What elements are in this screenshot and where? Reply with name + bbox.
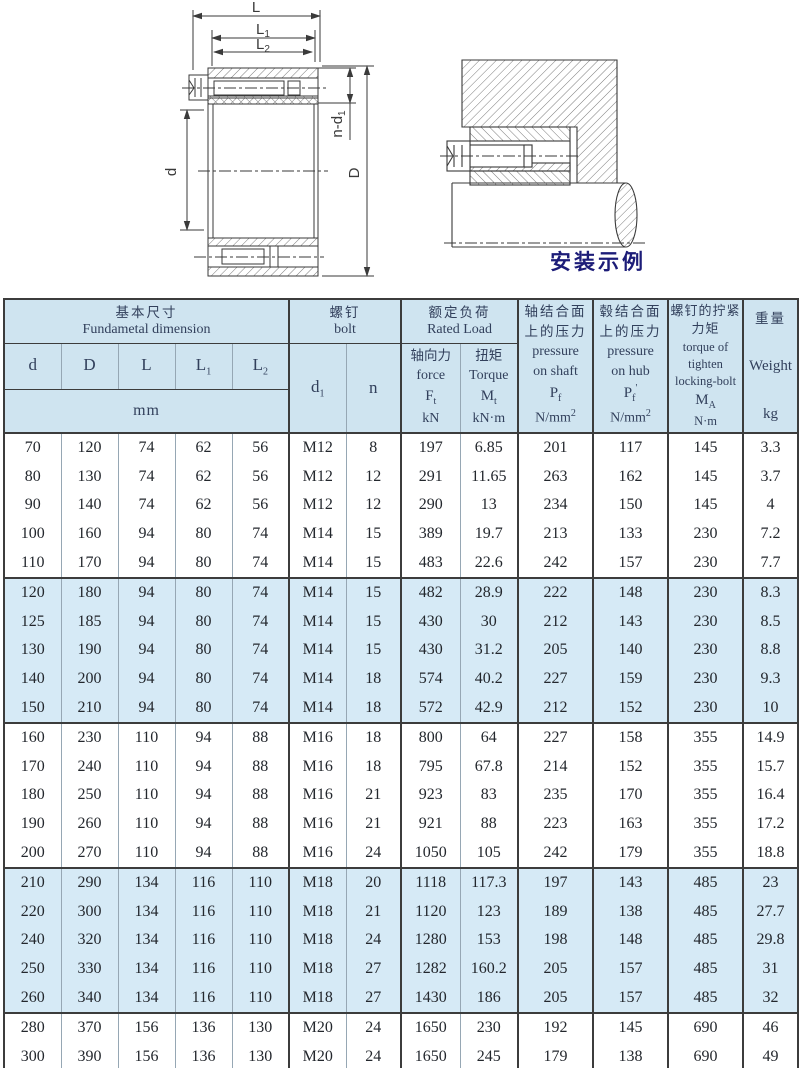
cell: 117 xyxy=(593,433,668,463)
cell: 483 xyxy=(401,548,460,578)
cell: 482 xyxy=(401,578,460,608)
cell: 88 xyxy=(232,810,289,839)
cell: 27 xyxy=(346,955,401,984)
cell: 100 xyxy=(4,520,61,549)
cell: 430 xyxy=(401,636,460,665)
cell: 24 xyxy=(346,1042,401,1068)
cell: 572 xyxy=(401,693,460,723)
dim-label-L: L xyxy=(252,0,260,16)
cell: 16.4 xyxy=(743,781,798,810)
cell: 152 xyxy=(593,753,668,782)
cell: 116 xyxy=(175,868,232,898)
cell: 921 xyxy=(401,810,460,839)
cell: 110 xyxy=(118,723,175,753)
cell: 157 xyxy=(593,548,668,578)
col-header-rated-load: 额定负荷 Rated Load xyxy=(401,299,518,344)
cell: 24 xyxy=(346,926,401,955)
installation-parts xyxy=(447,60,637,247)
bolt-head xyxy=(189,75,208,100)
cell: 270 xyxy=(61,838,118,868)
cell: M14 xyxy=(289,608,346,637)
installation-drawing xyxy=(438,42,758,272)
cell: 1430 xyxy=(401,983,460,1013)
cell: 40.2 xyxy=(460,665,518,694)
cell: 15 xyxy=(346,608,401,637)
cell: 3.7 xyxy=(743,463,798,492)
cell: 212 xyxy=(518,608,593,637)
cell: 1650 xyxy=(401,1042,460,1068)
cell: 74 xyxy=(232,636,289,665)
cell: 230 xyxy=(668,520,743,549)
cell: 157 xyxy=(593,955,668,984)
col-header-axial-force: 轴向力 force Ft kN xyxy=(401,344,460,434)
cell: 180 xyxy=(4,781,61,810)
cell: 213 xyxy=(518,520,593,549)
cell: 17.2 xyxy=(743,810,798,839)
table-row: 220300134116110M1821112012318913848527.7 xyxy=(4,898,798,927)
cell: 1050 xyxy=(401,838,460,868)
cell: 80 xyxy=(175,548,232,578)
cell: 3.3 xyxy=(743,433,798,463)
cell: 389 xyxy=(401,520,460,549)
cell: 330 xyxy=(61,955,118,984)
col-header-unit-mm: mm xyxy=(4,390,289,434)
cell: 42.9 xyxy=(460,693,518,723)
cell: 62 xyxy=(175,491,232,520)
cell: 240 xyxy=(4,926,61,955)
cell: 110 xyxy=(232,868,289,898)
cell: 46 xyxy=(743,1013,798,1043)
cell: M16 xyxy=(289,810,346,839)
cell: 145 xyxy=(668,433,743,463)
col-header-basic-dimensions: 基本尺寸 Fundametal dimension xyxy=(4,299,289,344)
table-row: 120180948074M141548228.92221482308.3 xyxy=(4,578,798,608)
cell: 242 xyxy=(518,548,593,578)
cell: 197 xyxy=(401,433,460,463)
cell: 56 xyxy=(232,433,289,463)
cell: 190 xyxy=(61,636,118,665)
cell: 145 xyxy=(593,1013,668,1043)
cell: 123 xyxy=(460,898,518,927)
cell: 110 xyxy=(118,753,175,782)
cell: 88 xyxy=(232,781,289,810)
cell: 230 xyxy=(668,548,743,578)
cell: 201 xyxy=(518,433,593,463)
cell: 94 xyxy=(118,520,175,549)
cell: 260 xyxy=(61,810,118,839)
cell: 23 xyxy=(743,868,798,898)
cell: 212 xyxy=(518,693,593,723)
cell: 110 xyxy=(118,810,175,839)
cell: M14 xyxy=(289,693,346,723)
cell: 30 xyxy=(460,608,518,637)
cell: 143 xyxy=(593,608,668,637)
cell: 15.7 xyxy=(743,753,798,782)
cell: 19.7 xyxy=(460,520,518,549)
cell: 485 xyxy=(668,926,743,955)
cell: 31 xyxy=(743,955,798,984)
table-row: 90140746256M1212290132341501454 xyxy=(4,491,798,520)
cell: 205 xyxy=(518,636,593,665)
table-row: 140200948074M141857440.22271592309.3 xyxy=(4,665,798,694)
cell: 186 xyxy=(460,983,518,1013)
cell: 145 xyxy=(668,491,743,520)
cell: 197 xyxy=(518,868,593,898)
spec-table-body: 70120746256M1281976.852011171453.3801307… xyxy=(4,433,798,1068)
cell: 1650 xyxy=(401,1013,460,1043)
col-header-torque: 扭矩 Torque Mt kN·m xyxy=(460,344,518,434)
device-body xyxy=(189,68,318,276)
cell: 690 xyxy=(668,1013,743,1043)
cell: 21 xyxy=(346,898,401,927)
cell: 230 xyxy=(668,608,743,637)
cell: 150 xyxy=(4,693,61,723)
cell: 340 xyxy=(61,983,118,1013)
cell: 320 xyxy=(61,926,118,955)
spec-table: 基本尺寸 Fundametal dimension 螺钉 bolt 额定负荷 R… xyxy=(3,298,799,1068)
header-row-1: 基本尺寸 Fundametal dimension 螺钉 bolt 额定负荷 R… xyxy=(4,299,798,344)
cell: 74 xyxy=(232,693,289,723)
cell: M16 xyxy=(289,723,346,753)
shaft-end xyxy=(615,183,637,247)
cell: 88 xyxy=(232,723,289,753)
cell: 179 xyxy=(593,838,668,868)
cell: 291 xyxy=(401,463,460,492)
cell: 133 xyxy=(593,520,668,549)
cell: 74 xyxy=(232,548,289,578)
col-header-bolt: 螺钉 bolt xyxy=(289,299,401,344)
cell: 74 xyxy=(232,665,289,694)
col-header-d: d xyxy=(4,344,61,390)
cell: 162 xyxy=(593,463,668,492)
cell: 24 xyxy=(346,1013,401,1043)
cell: 32 xyxy=(743,983,798,1013)
cell: 148 xyxy=(593,578,668,608)
cell: 10 xyxy=(743,693,798,723)
cell: 170 xyxy=(593,781,668,810)
cell: 70 xyxy=(4,433,61,463)
cell: 125 xyxy=(4,608,61,637)
cell: 110 xyxy=(232,926,289,955)
cell: 4 xyxy=(743,491,798,520)
cell: 355 xyxy=(668,810,743,839)
cell: 11.65 xyxy=(460,463,518,492)
cell: 94 xyxy=(175,810,232,839)
cell: 74 xyxy=(118,463,175,492)
cell: 1118 xyxy=(401,868,460,898)
cell: 80 xyxy=(175,578,232,608)
cell: 160 xyxy=(61,520,118,549)
cell: 94 xyxy=(118,548,175,578)
cell: 160.2 xyxy=(460,955,518,984)
cell: 116 xyxy=(175,898,232,927)
cell: 163 xyxy=(593,810,668,839)
table-row: 1902601109488M16219218822316335517.2 xyxy=(4,810,798,839)
cell: M18 xyxy=(289,983,346,1013)
cell: 88 xyxy=(232,753,289,782)
cell: 7.7 xyxy=(743,548,798,578)
cell: 94 xyxy=(175,781,232,810)
cell: 156 xyxy=(118,1042,175,1068)
cell: 134 xyxy=(118,926,175,955)
cell: 355 xyxy=(668,781,743,810)
table-row: 80130746256M121229111.652631621453.7 xyxy=(4,463,798,492)
table-row: 110170948074M141548322.62421572307.7 xyxy=(4,548,798,578)
cell: 230 xyxy=(61,723,118,753)
cell: 110 xyxy=(232,955,289,984)
cell: 74 xyxy=(118,491,175,520)
cell: 134 xyxy=(118,983,175,1013)
cell: 210 xyxy=(4,868,61,898)
cell: 242 xyxy=(518,838,593,868)
cell: 390 xyxy=(61,1042,118,1068)
cell: 15 xyxy=(346,636,401,665)
cell: 214 xyxy=(518,753,593,782)
cell: 94 xyxy=(118,665,175,694)
cell: 690 xyxy=(668,1042,743,1068)
cell: 220 xyxy=(4,898,61,927)
cell: 355 xyxy=(668,838,743,868)
cell: 205 xyxy=(518,955,593,984)
dim-label-D: D xyxy=(346,167,363,178)
col-header-D: D xyxy=(61,344,118,390)
cell: 485 xyxy=(668,983,743,1013)
installation-caption: 安装示例 xyxy=(438,246,758,276)
cell: 923 xyxy=(401,781,460,810)
cell: M12 xyxy=(289,463,346,492)
cell: 143 xyxy=(593,868,668,898)
cell: 64 xyxy=(460,723,518,753)
cell: 74 xyxy=(232,608,289,637)
cell: M12 xyxy=(289,433,346,463)
cell: 130 xyxy=(232,1013,289,1043)
cell: 290 xyxy=(401,491,460,520)
cell: 74 xyxy=(118,433,175,463)
cell: 90 xyxy=(4,491,61,520)
cell: 200 xyxy=(61,665,118,694)
cell: 280 xyxy=(4,1013,61,1043)
cell: 290 xyxy=(61,868,118,898)
cell: M14 xyxy=(289,665,346,694)
cell: 110 xyxy=(232,983,289,1013)
cell: 210 xyxy=(61,693,118,723)
cell: 300 xyxy=(61,898,118,927)
cell: 18 xyxy=(346,753,401,782)
cell: 94 xyxy=(175,723,232,753)
cell: M14 xyxy=(289,578,346,608)
col-header-L2: L2 xyxy=(232,344,289,390)
cell: 110 xyxy=(232,898,289,927)
table-row: 1702401109488M161879567.821415235515.7 xyxy=(4,753,798,782)
cell: 138 xyxy=(593,1042,668,1068)
cell: 13 xyxy=(460,491,518,520)
cell: 27.7 xyxy=(743,898,798,927)
cell: 230 xyxy=(668,636,743,665)
cell: M14 xyxy=(289,520,346,549)
cell: 74 xyxy=(232,578,289,608)
cell: 15 xyxy=(346,548,401,578)
cell: 158 xyxy=(593,723,668,753)
cell: 263 xyxy=(518,463,593,492)
catalog-page: L L1 L2 n-d1 d D xyxy=(0,0,800,1068)
cell: 94 xyxy=(118,578,175,608)
table-row: 100160948074M141538919.72131332307.2 xyxy=(4,520,798,549)
cell: 485 xyxy=(668,868,743,898)
cell: 117.3 xyxy=(460,868,518,898)
cell: 21 xyxy=(346,810,401,839)
cell: 222 xyxy=(518,578,593,608)
cell: 94 xyxy=(118,636,175,665)
cell: 12 xyxy=(346,463,401,492)
cell: 110 xyxy=(4,548,61,578)
cell: M18 xyxy=(289,926,346,955)
cell: 1280 xyxy=(401,926,460,955)
sectional-drawing: L L1 L2 n-d1 d D xyxy=(88,0,408,298)
cell: 200 xyxy=(4,838,61,868)
col-header-L: L xyxy=(118,344,175,390)
col-header-pressure-on-hub: 毂结合面 上的压力 pressure on hub Pf' N/mm2 xyxy=(593,299,668,433)
cell: 15 xyxy=(346,520,401,549)
table-row: 1602301109488M16188006422715835514.9 xyxy=(4,723,798,753)
cell: 105 xyxy=(460,838,518,868)
col-header-d1: d1 xyxy=(289,344,346,434)
cell: 62 xyxy=(175,463,232,492)
cell: 152 xyxy=(593,693,668,723)
cell: 83 xyxy=(460,781,518,810)
cell: 574 xyxy=(401,665,460,694)
cell: 80 xyxy=(175,693,232,723)
cell: 110 xyxy=(118,781,175,810)
cell: M20 xyxy=(289,1042,346,1068)
cell: 192 xyxy=(518,1013,593,1043)
cell: 8.8 xyxy=(743,636,798,665)
table-row: 125185948074M1415430302121432308.5 xyxy=(4,608,798,637)
cell: 230 xyxy=(668,578,743,608)
table-row: 150210948074M141857242.921215223010 xyxy=(4,693,798,723)
cell: 56 xyxy=(232,463,289,492)
cell: 27 xyxy=(346,983,401,1013)
cell: 1120 xyxy=(401,898,460,927)
cell: 198 xyxy=(518,926,593,955)
cell: 120 xyxy=(4,578,61,608)
cell: 14.9 xyxy=(743,723,798,753)
cell: 160 xyxy=(4,723,61,753)
cell: 9.3 xyxy=(743,665,798,694)
cell: 1282 xyxy=(401,955,460,984)
cell: 150 xyxy=(593,491,668,520)
cell: M20 xyxy=(289,1013,346,1043)
col-header-pressure-on-shaft: 轴结合面 上的压力 pressure on shaft Pf N/mm2 xyxy=(518,299,593,433)
cell: 355 xyxy=(668,753,743,782)
table-row: 130190948074M141543031.22051402308.8 xyxy=(4,636,798,665)
cell: 138 xyxy=(593,898,668,927)
cell: 140 xyxy=(593,636,668,665)
cell: 223 xyxy=(518,810,593,839)
cell: M12 xyxy=(289,491,346,520)
cell: 180 xyxy=(61,578,118,608)
cell: 795 xyxy=(401,753,460,782)
cell: M16 xyxy=(289,781,346,810)
cell: 130 xyxy=(4,636,61,665)
technical-drawings: L L1 L2 n-d1 d D xyxy=(0,0,800,298)
col-header-L1: L1 xyxy=(175,344,232,390)
cell: 170 xyxy=(61,548,118,578)
cell: 145 xyxy=(668,463,743,492)
cell: 21 xyxy=(346,781,401,810)
cell: 148 xyxy=(593,926,668,955)
cell: 153 xyxy=(460,926,518,955)
cell: 15 xyxy=(346,578,401,608)
cell: 74 xyxy=(232,520,289,549)
cell: 7.2 xyxy=(743,520,798,549)
cell: 88 xyxy=(232,838,289,868)
cell: 250 xyxy=(4,955,61,984)
col-header-weight: 重量 Weight kg xyxy=(743,299,798,433)
cell: 6.85 xyxy=(460,433,518,463)
cell: 120 xyxy=(61,433,118,463)
cell: 134 xyxy=(118,898,175,927)
cell: 355 xyxy=(668,723,743,753)
cell: 156 xyxy=(118,1013,175,1043)
cell: 18 xyxy=(346,693,401,723)
cell: 116 xyxy=(175,955,232,984)
cell: 227 xyxy=(518,723,593,753)
dim-label-d: d xyxy=(163,168,180,176)
cell: 12 xyxy=(346,491,401,520)
cell: M18 xyxy=(289,868,346,898)
cell: 88 xyxy=(460,810,518,839)
cell: 56 xyxy=(232,491,289,520)
cell: 157 xyxy=(593,983,668,1013)
cell: 94 xyxy=(118,608,175,637)
centerlines xyxy=(182,88,328,257)
cell: 8 xyxy=(346,433,401,463)
table-row: 1802501109488M16219238323517035516.4 xyxy=(4,781,798,810)
table-row: 70120746256M1281976.852011171453.3 xyxy=(4,433,798,463)
cell: 20 xyxy=(346,868,401,898)
cell: 18.8 xyxy=(743,838,798,868)
cell: 134 xyxy=(118,868,175,898)
cell: 130 xyxy=(61,463,118,492)
cell: 235 xyxy=(518,781,593,810)
cell: 205 xyxy=(518,983,593,1013)
cell: 234 xyxy=(518,491,593,520)
cell: 485 xyxy=(668,955,743,984)
table-row: 260340134116110M1827143018620515748532 xyxy=(4,983,798,1013)
cell: 94 xyxy=(175,838,232,868)
cell: 170 xyxy=(4,753,61,782)
table-row: 280370156136130M2024165023019214569046 xyxy=(4,1013,798,1043)
dim-label-nd1: n-d1 xyxy=(329,110,348,138)
cell: M18 xyxy=(289,898,346,927)
cell: 80 xyxy=(175,636,232,665)
cell: 29.8 xyxy=(743,926,798,955)
cell: 116 xyxy=(175,926,232,955)
cell: 49 xyxy=(743,1042,798,1068)
cell: M18 xyxy=(289,955,346,984)
cell: 110 xyxy=(118,838,175,868)
col-header-tighten-torque: 螺钉的拧紧 力矩 torque of tighten locking-bolt … xyxy=(668,299,743,433)
spec-table-wrap: 基本尺寸 Fundametal dimension 螺钉 bolt 额定负荷 R… xyxy=(3,298,797,1068)
cell: 250 xyxy=(61,781,118,810)
cell: 80 xyxy=(4,463,61,492)
cell: 185 xyxy=(61,608,118,637)
cell: 8.5 xyxy=(743,608,798,637)
cell: 134 xyxy=(118,955,175,984)
cell: 140 xyxy=(4,665,61,694)
cell: 159 xyxy=(593,665,668,694)
cell: 230 xyxy=(668,693,743,723)
